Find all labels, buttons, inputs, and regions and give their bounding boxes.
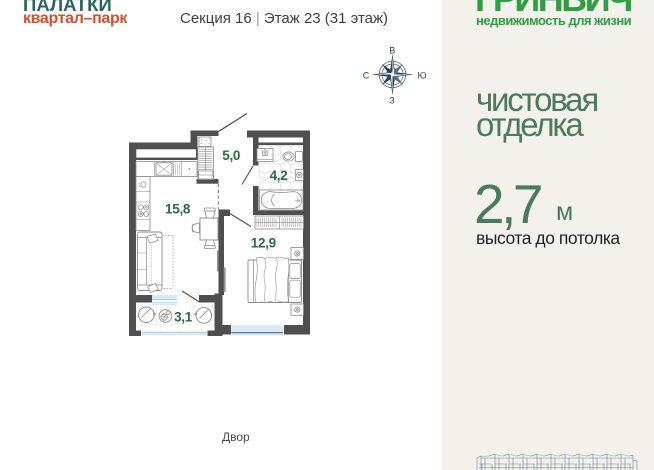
svg-text:15,8: 15,8 (165, 202, 191, 217)
svg-text:5,0: 5,0 (222, 148, 240, 163)
svg-text:Ю: Ю (418, 70, 427, 80)
svg-text:3,1: 3,1 (174, 310, 193, 325)
svg-text:12,9: 12,9 (251, 236, 276, 251)
svg-text:В: В (389, 46, 395, 56)
svg-text:З: З (389, 96, 394, 106)
svg-text:С: С (363, 70, 370, 80)
svg-text:4,2: 4,2 (270, 168, 288, 183)
